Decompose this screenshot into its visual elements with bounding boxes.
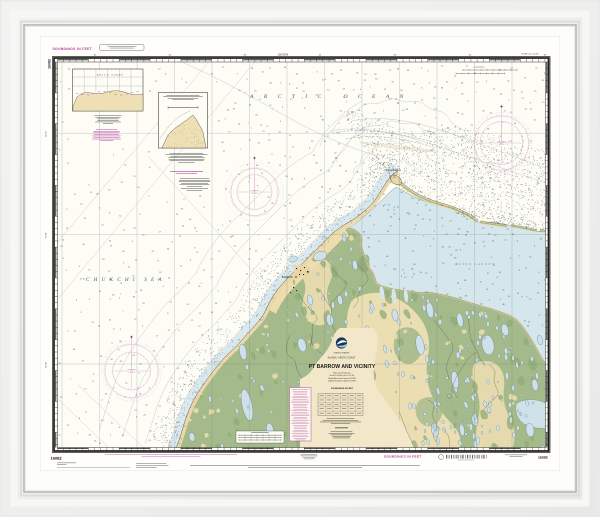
svg-text:Mercator Projection: Mercator Projection [333,372,350,375]
svg-text:CHUKCHI SEA: CHUKCHI SEA [86,277,166,283]
svg-text:16082: 16082 [47,59,51,69]
svg-text:UNITED STATES: UNITED STATES [334,352,350,355]
svg-text:SOUNDINGS IN FEET: SOUNDINGS IN FEET [331,388,354,390]
svg-text:SOUNDINGS IN FEET: SOUNDINGS IN FEET [52,47,92,51]
svg-text:71°20': 71°20' [46,131,48,138]
svg-text:PT BARROW AND VICINITY: PT BARROW AND VICINITY [309,364,376,370]
svg-text:16082: 16082 [50,456,62,461]
svg-text:(World Geodetic System 1984): (World Geodetic System 1984) [328,379,356,382]
svg-text:NOAA Chart 16082: NOAA Chart 16082 [521,53,539,56]
svg-text:156°30'W: 156°30'W [278,53,289,56]
svg-text:BARROW: BARROW [282,276,294,279]
svg-text:ALASKA - ARCTIC COAST: ALASKA - ARCTIC COAST [328,356,356,359]
svg-text:Point Barrow: Point Barrow [386,168,401,172]
svg-text:ARCTIC OCEAN: ARCTIC OCEAN [249,94,414,100]
svg-text:71°20': 71°20' [46,232,48,239]
svg-text:ELSON LAGOON: ELSON LAGOON [455,263,496,266]
svg-text:Scale 1:50,000 at Lat 71°20': Scale 1:50,000 at Lat 71°20' [329,374,355,377]
svg-text:16082: 16082 [538,456,548,460]
svg-text:ARCTIC OCEAN: ARCTIC OCEAN [97,74,123,77]
svg-text:71°20': 71°20' [46,361,48,368]
svg-text:North American Datum of 1983: North American Datum of 1983 [328,377,356,380]
svg-text:SOUNDINGS IN FEET: SOUNDINGS IN FEET [384,455,422,459]
